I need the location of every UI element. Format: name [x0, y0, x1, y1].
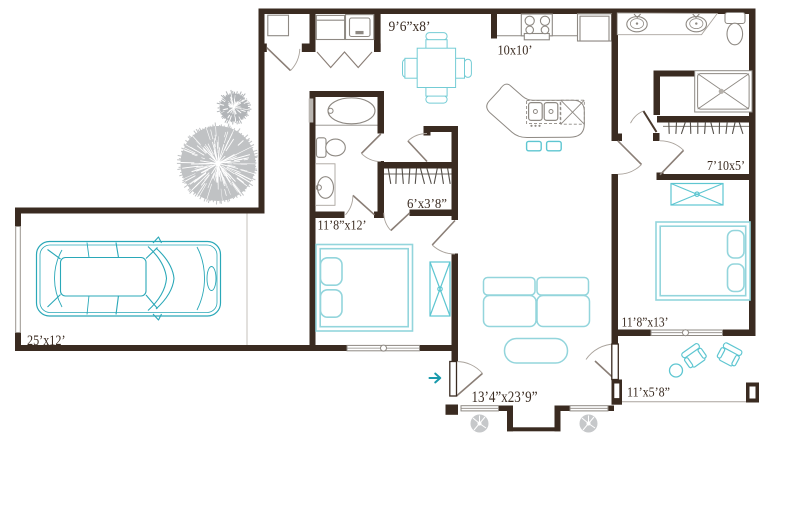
- svg-text:6’x3’8”: 6’x3’8”: [407, 197, 447, 212]
- svg-text:25’x12’: 25’x12’: [27, 333, 66, 349]
- svg-text:11’8”x13’: 11’8”x13’: [622, 315, 669, 330]
- svg-text:10x10’: 10x10’: [498, 43, 533, 58]
- svg-text:11’8”x12’: 11’8”x12’: [318, 218, 367, 233]
- svg-text:11’x5’8”: 11’x5’8”: [627, 386, 670, 401]
- svg-text:13’4”x23’9”: 13’4”x23’9”: [472, 389, 538, 406]
- svg-text:7’10x5’: 7’10x5’: [707, 158, 745, 173]
- svg-text:9’6”x8’: 9’6”x8’: [389, 19, 431, 35]
